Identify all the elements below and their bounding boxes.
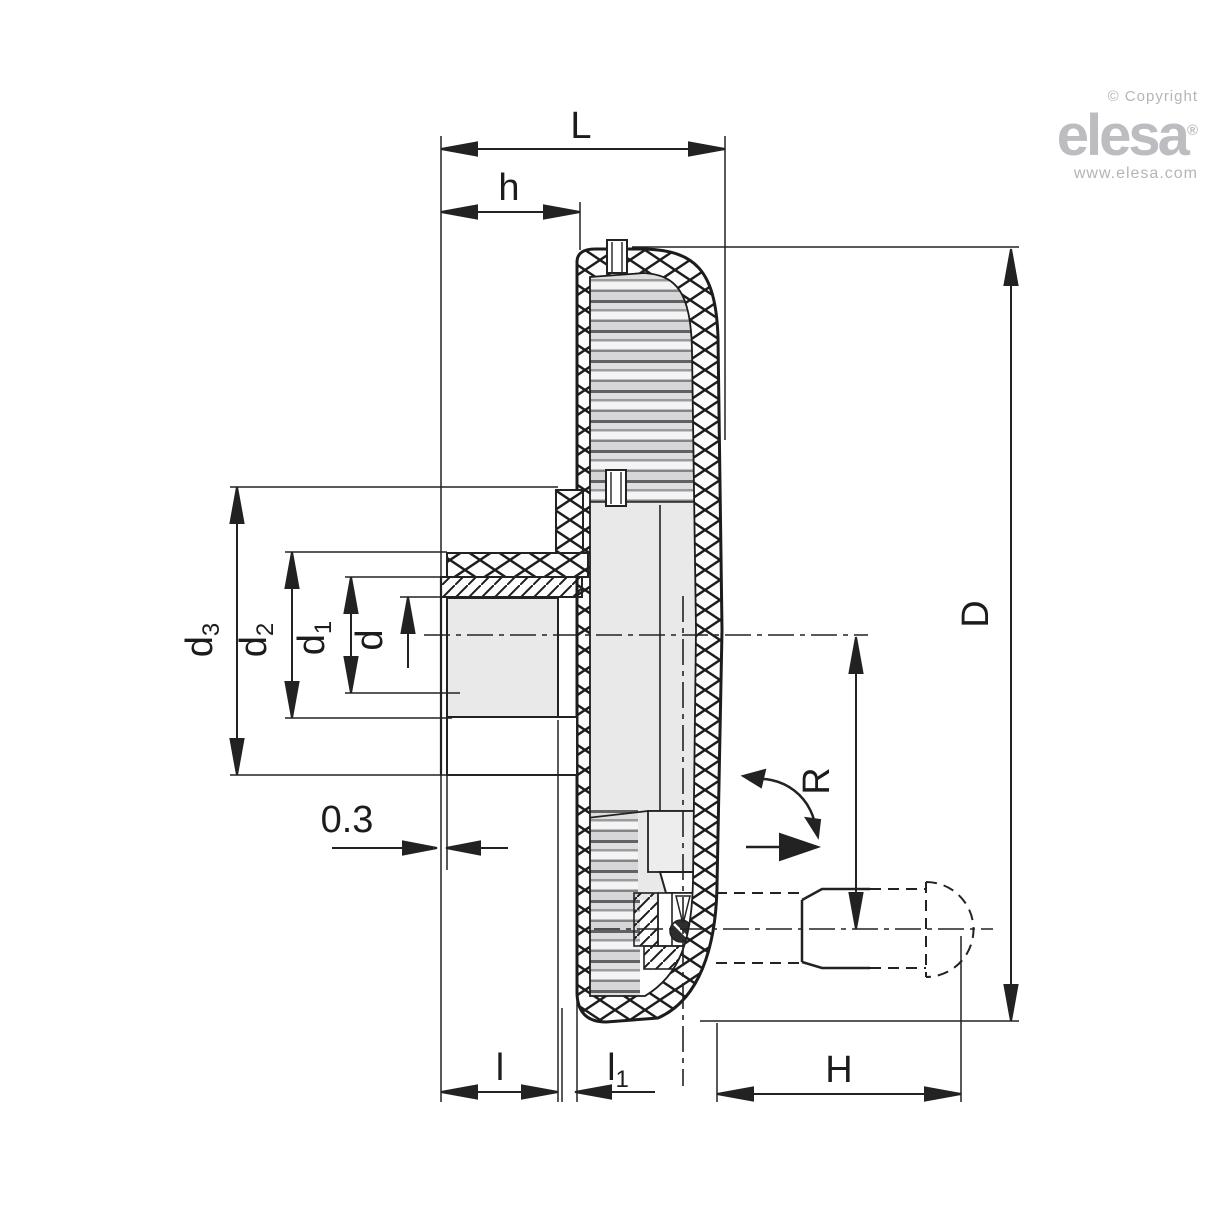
dim-label-L: L [570, 105, 591, 147]
drawing-page: L h d3 d2 d1 d 0.3 l l1 H D R © Copyrigh… [0, 0, 1214, 1214]
hub-flange-hatch [447, 553, 588, 577]
dim-label-l1: l1 [607, 1047, 629, 1093]
dimension-d3 [231, 487, 244, 775]
website-text: www.elesa.com [1057, 165, 1198, 183]
fold-direction-arrow [780, 834, 818, 860]
dimension-d [402, 597, 415, 668]
handwheel-section [577, 240, 722, 1022]
dim-label-d3: d3 [179, 623, 225, 658]
dim-label-R: R [796, 767, 838, 794]
hub-section [441, 490, 588, 775]
dim-label-offset: 0.3 [321, 799, 374, 841]
wheel-web [590, 502, 698, 812]
dim-label-l: l [496, 1047, 504, 1089]
rim-ribs-top [590, 272, 698, 502]
dimension-D [1005, 249, 1018, 1021]
insert-flange-hatch [441, 577, 582, 597]
registered-mark: ® [1187, 122, 1198, 139]
dim-label-H: H [825, 1049, 852, 1091]
dim-label-h: h [498, 167, 519, 209]
rim-ribs-bottom [590, 810, 640, 1000]
dim-label-d: d [349, 629, 391, 650]
elesa-logo-text: elesa [1057, 103, 1187, 168]
mold-pin-top [607, 240, 627, 273]
hub-collar-step [556, 490, 583, 553]
mold-pin-inner [606, 470, 626, 506]
brand-block: © Copyright elesa® www.elesa.com [1057, 88, 1198, 183]
hub-boss [447, 598, 558, 717]
dim-label-D: D [955, 600, 997, 627]
technical-drawing: L h d3 d2 d1 d 0.3 l l1 H D R [0, 0, 1214, 1214]
dimension-offset-03 [332, 842, 508, 855]
dim-label-d1: d1 [291, 621, 337, 656]
elesa-logo: elesa® [1057, 107, 1198, 165]
dimension-R [850, 637, 863, 929]
dim-label-d2: d2 [233, 623, 279, 658]
